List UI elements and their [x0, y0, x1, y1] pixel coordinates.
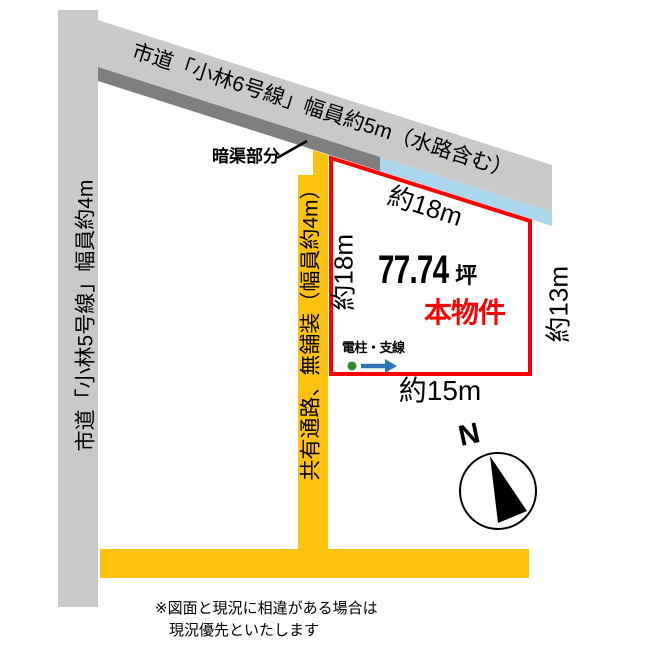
area-label: 77.74 坪 — [378, 248, 477, 292]
note-line1: ※図面と現況に相違がある場合は — [155, 598, 378, 619]
area-value: 77.74 — [378, 248, 448, 292]
area-unit: 坪 — [455, 264, 477, 288]
road5-label: 市道「小林5号線」幅員約4m — [74, 175, 97, 457]
north-arrow-icon — [490, 456, 527, 523]
dimension-right: 約13m — [545, 244, 574, 364]
passage-label: 共有通路、無舗装（幅員約4m） — [299, 170, 322, 490]
plot-diagram: 市道「小林6号線」幅員約5m（水路含む） 市道「小林5号線」幅員約4m 共有通路… — [0, 0, 650, 651]
utility-pole-dot — [348, 362, 357, 371]
note-line2: 現況優先といたします — [169, 620, 319, 641]
culvert-pointer-line — [277, 141, 307, 158]
utility-pole-label: 電柱・支線 — [342, 341, 405, 355]
property-label: 本物件 — [424, 298, 505, 329]
culvert-label: 暗渠部分 — [212, 148, 280, 167]
bottom-road-shape — [100, 549, 529, 578]
dimension-left: 約18m — [330, 217, 359, 327]
dimension-bottom: 約15m — [362, 376, 518, 407]
